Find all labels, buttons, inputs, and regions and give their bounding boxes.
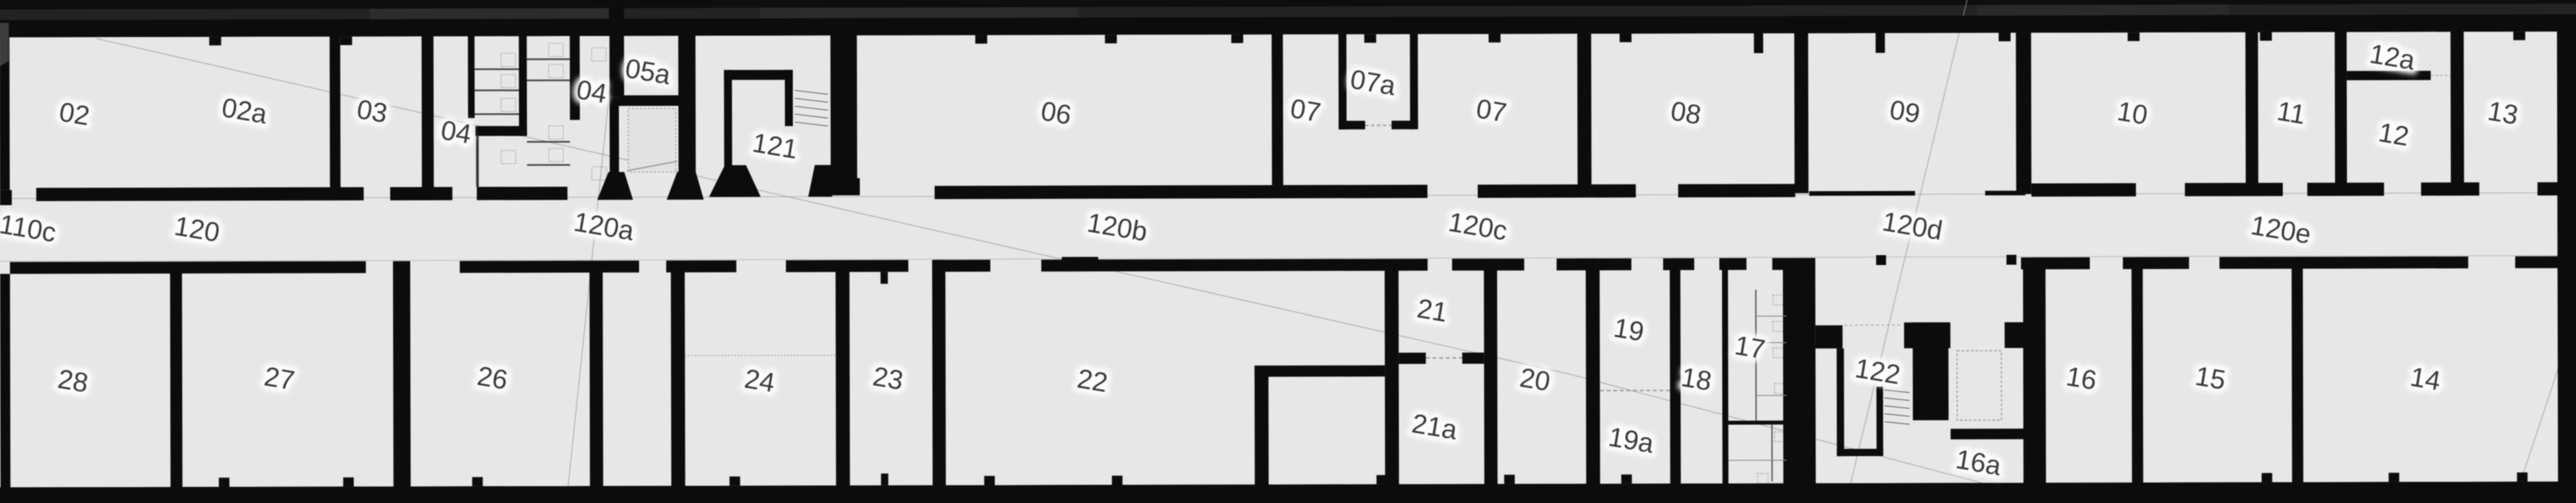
svg-text:03: 03 [355,94,390,129]
svg-text:23: 23 [871,361,906,396]
svg-text:04: 04 [574,74,609,109]
svg-text:11: 11 [2275,95,2308,130]
svg-text:22: 22 [1075,363,1110,398]
svg-text:26: 26 [475,360,510,395]
svg-text:02: 02 [57,97,92,132]
svg-text:08: 08 [1668,95,1703,130]
svg-text:07: 07 [1474,93,1509,128]
svg-text:12: 12 [2376,117,2411,152]
svg-text:28: 28 [56,364,91,399]
svg-text:21: 21 [1415,293,1450,328]
svg-text:15: 15 [2193,360,2228,395]
svg-text:10: 10 [2115,96,2150,131]
svg-text:06: 06 [1039,95,1074,130]
svg-text:07: 07 [1288,93,1323,128]
svg-text:04: 04 [439,114,474,149]
svg-text:16: 16 [2064,361,2099,396]
svg-text:14: 14 [2408,362,2443,397]
svg-text:24: 24 [742,363,777,398]
svg-text:18: 18 [1679,362,1714,397]
svg-text:19: 19 [1611,312,1647,347]
svg-text:17: 17 [1733,330,1768,365]
svg-text:13: 13 [2485,95,2520,130]
svg-text:27: 27 [262,361,297,396]
svg-text:20: 20 [1518,362,1553,397]
svg-text:09: 09 [1887,94,1922,129]
